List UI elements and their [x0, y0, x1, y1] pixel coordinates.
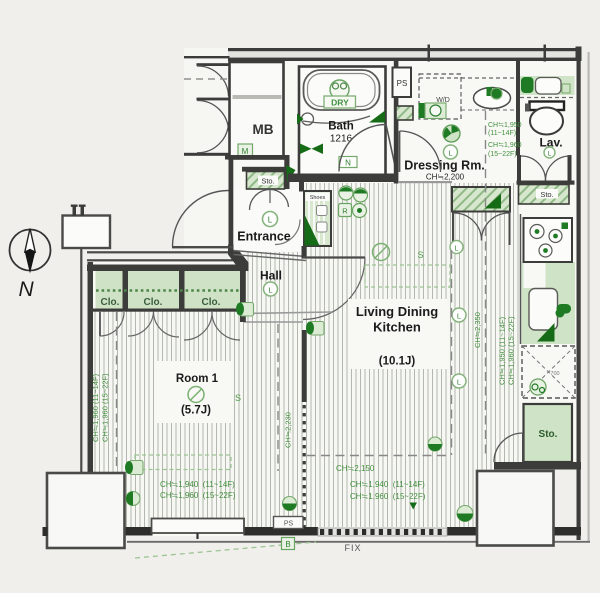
svg-text:L: L — [455, 246, 459, 253]
svg-text:CH≒1,960 (11~14F): CH≒1,960 (11~14F) — [91, 373, 100, 442]
svg-text:L: L — [268, 216, 273, 225]
svg-text:CH≒1,960: CH≒1,960 — [488, 142, 522, 149]
svg-text:R: R — [342, 207, 348, 216]
svg-text:Sto.: Sto. — [261, 177, 274, 186]
svg-text:Entrance: Entrance — [237, 230, 291, 244]
svg-text:Room 1: Room 1 — [176, 373, 219, 385]
svg-text:Clo.: Clo. — [144, 297, 163, 308]
svg-text:CH≒1,950: CH≒1,950 — [488, 122, 522, 129]
svg-text:Dressing Rm.: Dressing Rm. — [404, 159, 485, 173]
svg-text:CH≒2,350: CH≒2,350 — [473, 312, 482, 348]
svg-text:Bath: Bath — [328, 121, 354, 133]
svg-text:L: L — [448, 149, 452, 158]
svg-text:FIX: FIX — [344, 543, 361, 553]
svg-text:B: B — [285, 540, 290, 549]
svg-text:MB: MB — [253, 122, 274, 137]
svg-text:S: S — [235, 393, 241, 403]
svg-text:N: N — [19, 278, 35, 301]
svg-text:CH≒1,940 (11~14F): CH≒1,940 (11~14F) — [160, 480, 235, 489]
svg-text:L: L — [268, 286, 272, 295]
svg-text:(11~14F): (11~14F) — [488, 130, 516, 137]
svg-text:Kitchen: Kitchen — [373, 320, 421, 335]
svg-text:PS: PS — [397, 79, 408, 88]
svg-text:PS: PS — [284, 521, 294, 528]
svg-text:DRY: DRY — [331, 98, 349, 108]
svg-text:Clo.: Clo. — [101, 297, 120, 308]
svg-text:Hall: Hall — [260, 269, 282, 283]
svg-text:Sto.: Sto. — [539, 429, 558, 440]
svg-text:CH≒2,200: CH≒2,200 — [426, 173, 465, 182]
svg-text:Living Dining: Living Dining — [356, 304, 438, 319]
svg-text:(15~22F): (15~22F) — [488, 151, 517, 158]
svg-text:N: N — [345, 159, 351, 168]
svg-text:Shoes: Shoes — [310, 195, 326, 201]
svg-text:(10.1J): (10.1J) — [379, 356, 416, 368]
svg-text:M: M — [242, 147, 249, 156]
svg-text:L: L — [457, 312, 461, 321]
svg-text:CH≒1,950 (11~14F): CH≒1,950 (11~14F) — [498, 316, 507, 385]
svg-text:700: 700 — [550, 371, 559, 377]
svg-text:CH≒1,960 (15~22F): CH≒1,960 (15~22F) — [101, 373, 110, 442]
svg-text:CH≒1,960 (15~22F): CH≒1,960 (15~22F) — [350, 492, 426, 501]
svg-text:CH≒1,940 (11~14F): CH≒1,940 (11~14F) — [350, 480, 425, 489]
svg-text:Sto.: Sto. — [540, 190, 553, 199]
svg-text:CH≒2,230: CH≒2,230 — [284, 412, 293, 448]
svg-text:CH≒2,150: CH≒2,150 — [336, 464, 375, 473]
svg-text:CH≒1,960 (15~22F): CH≒1,960 (15~22F) — [160, 491, 236, 500]
svg-text:S: S — [417, 250, 423, 260]
svg-text:L: L — [457, 378, 461, 387]
svg-text:L: L — [548, 151, 552, 158]
svg-text:(5.7J): (5.7J) — [181, 405, 211, 417]
svg-text:Clo.: Clo. — [202, 297, 221, 308]
svg-text:CH≒1,960 (15~22F): CH≒1,960 (15~22F) — [507, 316, 516, 385]
